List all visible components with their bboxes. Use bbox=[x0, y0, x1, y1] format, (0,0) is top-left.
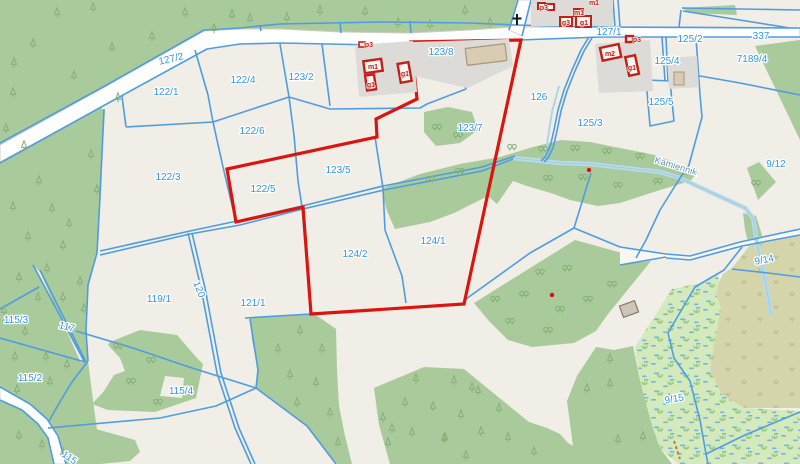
svg-text:m1: m1 bbox=[574, 10, 584, 17]
svg-text:p3: p3 bbox=[540, 5, 548, 12]
svg-text:p3: p3 bbox=[633, 37, 641, 44]
svg-text:m1: m1 bbox=[589, 0, 599, 7]
svg-text:m1: m1 bbox=[368, 64, 378, 71]
svg-text:122/1: 122/1 bbox=[153, 87, 178, 98]
svg-text:122/5: 122/5 bbox=[250, 184, 275, 195]
svg-text:115/2: 115/2 bbox=[18, 373, 43, 384]
svg-text:g1: g1 bbox=[367, 82, 375, 89]
svg-text:g3: g3 bbox=[562, 20, 570, 27]
svg-text:m2: m2 bbox=[605, 51, 615, 58]
svg-text:125/2: 125/2 bbox=[677, 34, 702, 45]
svg-text:124/2: 124/2 bbox=[342, 249, 367, 260]
svg-text:115/4: 115/4 bbox=[169, 386, 194, 397]
svg-text:125/3: 125/3 bbox=[577, 118, 602, 129]
svg-text:p3: p3 bbox=[365, 42, 373, 49]
svg-text:g1: g1 bbox=[628, 65, 636, 72]
svg-text:9/12: 9/12 bbox=[766, 159, 786, 170]
svg-text:125/5: 125/5 bbox=[648, 97, 673, 108]
svg-text:337: 337 bbox=[753, 31, 770, 42]
svg-text:123/2: 123/2 bbox=[288, 72, 313, 83]
svg-text:g1: g1 bbox=[401, 71, 409, 78]
svg-text:123/8: 123/8 bbox=[428, 47, 453, 58]
svg-text:121/1: 121/1 bbox=[240, 298, 265, 309]
svg-text:7189/4: 7189/4 bbox=[737, 54, 768, 65]
svg-text:126: 126 bbox=[531, 92, 548, 103]
svg-text:123/7: 123/7 bbox=[457, 123, 482, 134]
svg-text:119/1: 119/1 bbox=[147, 294, 172, 305]
svg-text:115/3: 115/3 bbox=[4, 315, 29, 326]
svg-text:123/5: 123/5 bbox=[325, 165, 350, 176]
svg-text:122/4: 122/4 bbox=[230, 75, 255, 86]
svg-text:122/3: 122/3 bbox=[155, 172, 180, 183]
svg-text:125/4: 125/4 bbox=[654, 56, 679, 67]
svg-text:127/1: 127/1 bbox=[596, 27, 621, 38]
svg-text:124/1: 124/1 bbox=[420, 236, 445, 247]
svg-text:g1: g1 bbox=[580, 20, 588, 27]
svg-text:122/6: 122/6 bbox=[239, 126, 264, 137]
